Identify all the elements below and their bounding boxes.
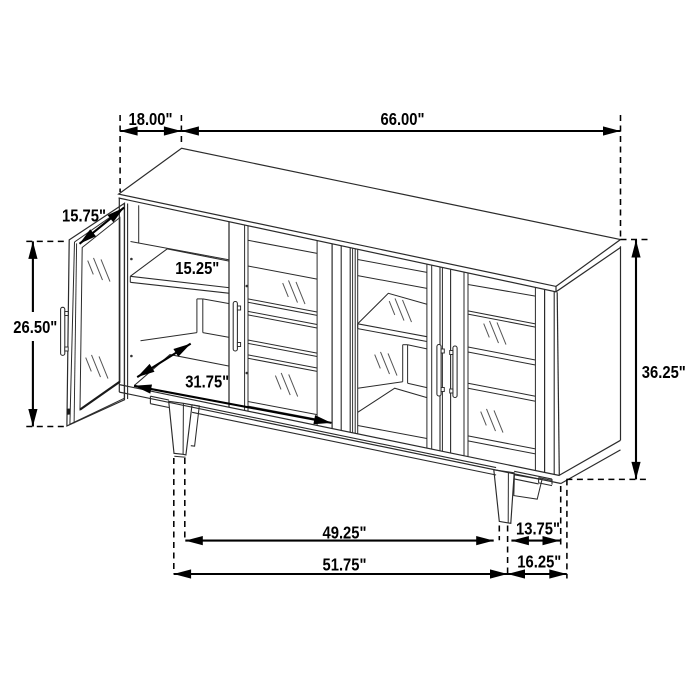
- svg-text:15.75": 15.75": [62, 206, 106, 226]
- svg-text:51.75": 51.75": [323, 555, 367, 575]
- svg-text:15.25": 15.25": [175, 258, 219, 278]
- svg-text:49.25": 49.25": [323, 523, 367, 543]
- svg-text:26.50": 26.50": [13, 317, 57, 337]
- svg-text:31.75": 31.75": [185, 371, 229, 391]
- svg-text:13.75": 13.75": [516, 519, 560, 539]
- svg-text:18.00": 18.00": [129, 109, 173, 129]
- svg-text:16.25": 16.25": [517, 551, 561, 571]
- svg-text:66.00": 66.00": [381, 109, 425, 129]
- svg-text:36.25": 36.25": [642, 362, 686, 382]
